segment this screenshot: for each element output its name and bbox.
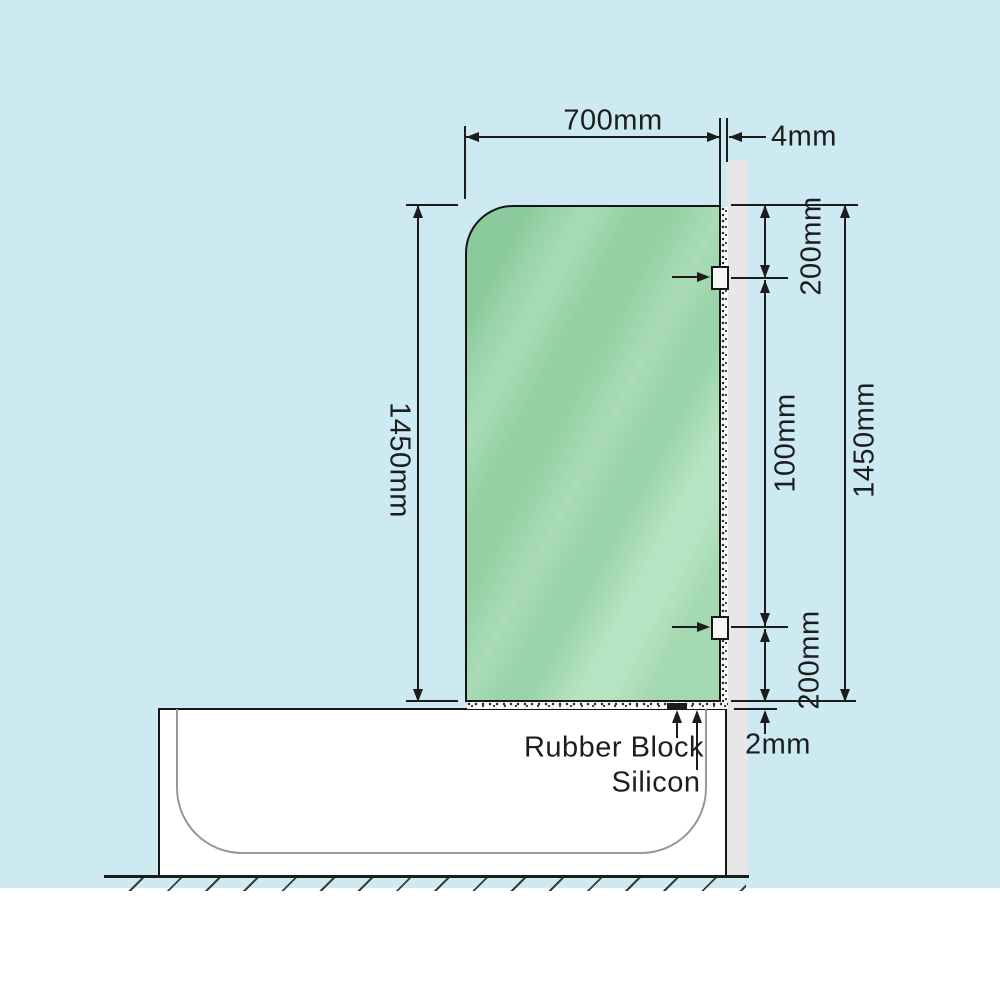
arrow-up-icon (760, 280, 770, 293)
rubber-block-part (667, 703, 687, 709)
top-bracket (711, 266, 729, 290)
dim-label-700mm: 700mm (563, 107, 662, 136)
dim-label-200mm-bottom: 200mm (796, 610, 825, 709)
extension-line (464, 126, 466, 199)
dim-label-1450mm-left: 1450mm (385, 402, 414, 518)
wall (727, 160, 748, 877)
bottom-white-band (0, 888, 1000, 1000)
arrow-down-icon (760, 613, 770, 626)
bracket-extension-line (731, 626, 788, 628)
arrow-up-icon (672, 710, 682, 723)
dim-label-1450mm-right: 1450mm (851, 382, 880, 498)
silicon-label: Silicon (612, 769, 701, 798)
dim-label-4mm: 4mm (771, 123, 837, 152)
arrow-up-icon (840, 205, 850, 218)
arrow-up-icon (760, 710, 770, 723)
shower-screen-installation-diagram: 700mm 4mm 1450mm 200mm 100mm 200mm (0, 0, 1000, 1000)
dim-line (844, 206, 846, 702)
arrow-up-icon (760, 629, 770, 642)
bracket-extension-line (731, 277, 788, 279)
arrow-up-icon (413, 205, 423, 218)
arrow-left-icon (729, 132, 742, 142)
extension-line (734, 708, 777, 710)
extension-line (731, 204, 858, 206)
extension-line (406, 204, 458, 206)
bottom-bracket (711, 616, 729, 640)
arrow-up-icon (760, 205, 770, 218)
arrow-up-icon (692, 710, 702, 723)
dim-label-100mm: 100mm (772, 393, 801, 492)
rubber-block-label: Rubber Block (524, 734, 704, 763)
dim-line (764, 280, 766, 626)
extension-line (726, 118, 728, 162)
pointer-line (672, 276, 698, 278)
extension-line (731, 700, 856, 702)
arrow-right-icon (697, 272, 710, 282)
leader-line (696, 721, 698, 770)
dim-label-200mm-top: 200mm (798, 196, 827, 295)
dim-label-2mm: 2mm (745, 731, 811, 760)
arrow-right-icon (697, 622, 710, 632)
dim-line (417, 206, 419, 702)
extension-line (406, 700, 458, 702)
silicon-bead-bottom (467, 702, 728, 709)
pointer-line (672, 626, 698, 628)
floor-hatching (106, 878, 746, 891)
extension-line (719, 118, 721, 206)
arrow-left-icon (466, 132, 479, 142)
